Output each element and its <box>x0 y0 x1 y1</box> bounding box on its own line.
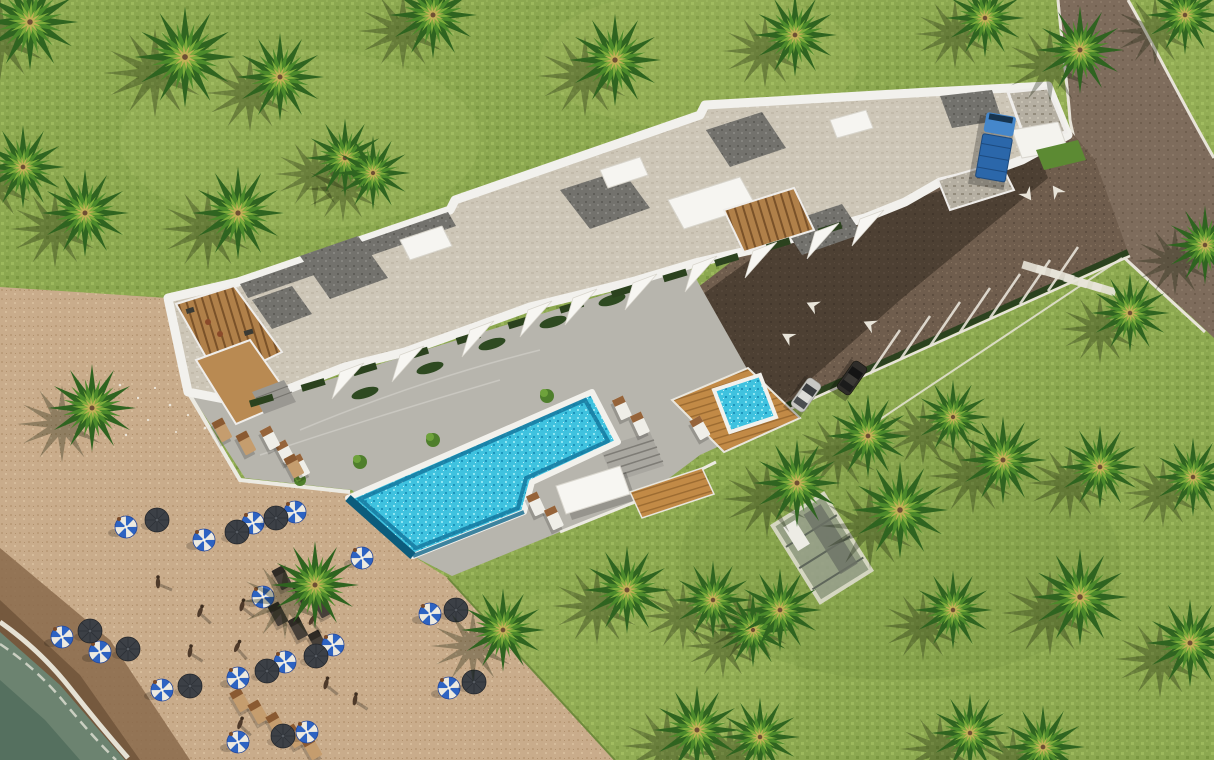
aerial-render-canvas <box>0 0 1214 760</box>
